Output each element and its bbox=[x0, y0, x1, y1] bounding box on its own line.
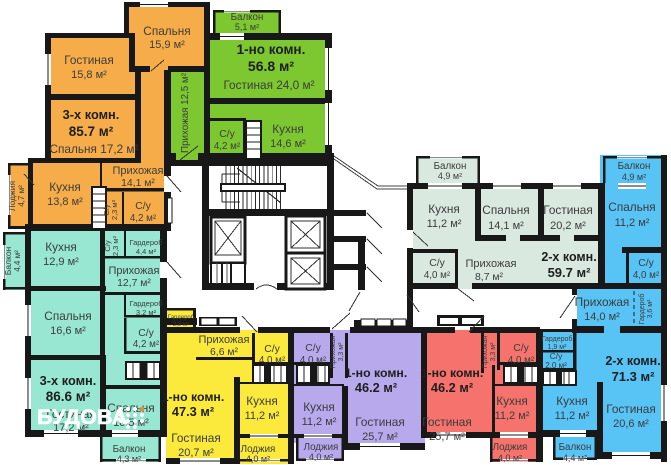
svg-text:2,0 м²: 2,0 м² bbox=[545, 361, 567, 370]
svg-text:С/у: С/у bbox=[638, 258, 654, 269]
svg-text:Спальня: Спальня bbox=[608, 200, 655, 214]
svg-text:С/у: С/у bbox=[135, 201, 151, 212]
svg-text:11,2 м²: 11,2 м² bbox=[302, 416, 337, 428]
svg-text:13,8 м²: 13,8 м² bbox=[47, 196, 83, 208]
svg-text:Прихожая: Прихожая bbox=[575, 295, 630, 309]
svg-text:4,2 м²: 4,2 м² bbox=[133, 339, 160, 350]
svg-text:Гардероб: Гардероб bbox=[130, 299, 163, 308]
svg-text:86.6 м²: 86.6 м² bbox=[46, 389, 91, 404]
svg-text:Гардероб: Гардероб bbox=[168, 315, 195, 321]
svg-text:С/у: С/у bbox=[219, 129, 235, 140]
svg-text:4,9 м²: 4,9 м² bbox=[622, 172, 646, 182]
svg-text:С/у: С/у bbox=[550, 351, 564, 361]
svg-text:Лоджия: Лоджия bbox=[493, 442, 528, 453]
svg-text:Балкон: Балкон bbox=[559, 442, 592, 453]
svg-text:20,2 м²: 20,2 м² bbox=[550, 220, 586, 232]
svg-text:Прихожая 12,5 м²: Прихожая 12,5 м² bbox=[180, 72, 191, 153]
svg-text:25,7 м²: 25,7 м² bbox=[362, 431, 398, 443]
svg-text:56.8 м²: 56.8 м² bbox=[248, 58, 294, 74]
svg-text:11,2 м²: 11,2 м² bbox=[245, 410, 280, 422]
svg-text:Кухня: Кухня bbox=[45, 240, 77, 254]
svg-text:1,9 м²: 1,9 м² bbox=[548, 344, 567, 351]
svg-text:Балкон: Балкон bbox=[3, 246, 13, 275]
svg-text:Прихожая: Прихожая bbox=[199, 334, 250, 346]
svg-text:Лоджия: Лоджия bbox=[7, 181, 17, 212]
svg-text:4,0 м²: 4,0 м² bbox=[246, 454, 270, 464]
svg-text:2,3 м²: 2,3 м² bbox=[111, 235, 120, 256]
svg-text:14,1 м²: 14,1 м² bbox=[121, 178, 155, 189]
svg-text:11,2 м²: 11,2 м² bbox=[555, 410, 590, 422]
svg-text:4,4 м²: 4,4 м² bbox=[13, 250, 22, 272]
svg-text:Гостиная: Гостиная bbox=[171, 431, 221, 445]
svg-text:16,6 м²: 16,6 м² bbox=[50, 325, 86, 337]
svg-text:11,2 м²: 11,2 м² bbox=[615, 217, 650, 229]
svg-text:Спальня: Спальня bbox=[143, 24, 190, 38]
svg-text:Гардероб: Гардероб bbox=[542, 335, 573, 343]
svg-text:14,6 м²: 14,6 м² bbox=[270, 138, 306, 150]
svg-text:20,7 м²: 20,7 м² bbox=[178, 447, 214, 459]
svg-text:Кухня: Кухня bbox=[428, 202, 460, 216]
svg-text:3,3 м²: 3,3 м² bbox=[338, 342, 345, 361]
svg-text:Балкон: Балкон bbox=[618, 161, 651, 172]
svg-text:Кухня: Кухня bbox=[556, 394, 588, 408]
svg-text:4,4 м²: 4,4 м² bbox=[136, 247, 157, 256]
svg-text:59.7 м²: 59.7 м² bbox=[548, 265, 592, 280]
svg-text:Гостиная: Гостиная bbox=[606, 402, 656, 416]
svg-text:С/у: С/у bbox=[138, 328, 154, 339]
svg-text:12,7 м²: 12,7 м² bbox=[117, 278, 151, 289]
svg-text:14,0 м²: 14,0 м² bbox=[584, 311, 620, 323]
svg-text:4,0 м²: 4,0 м² bbox=[309, 452, 333, 462]
svg-text:С/у: С/у bbox=[513, 343, 529, 354]
svg-text:Гардероб: Гардероб bbox=[638, 294, 646, 325]
svg-text:Прихожая: Прихожая bbox=[113, 165, 164, 177]
svg-text:20,6 м²: 20,6 м² bbox=[613, 418, 649, 430]
svg-text:Прихожая: Прихожая bbox=[466, 258, 517, 270]
svg-text:С/у: С/у bbox=[305, 343, 321, 354]
svg-text:Кухня: Кухня bbox=[272, 122, 304, 136]
svg-text:8,7 м²: 8,7 м² bbox=[475, 272, 503, 283]
svg-text:3,3 м²: 3,3 м² bbox=[490, 342, 497, 361]
svg-text:4,7 м²: 4,7 м² bbox=[17, 185, 26, 207]
svg-text:Кухня: Кухня bbox=[49, 180, 81, 194]
svg-text:4,0 м²: 4,0 м² bbox=[259, 355, 286, 366]
svg-text:11,2 м²: 11,2 м² bbox=[427, 218, 462, 230]
svg-text:2,8 м²: 2,8 м² bbox=[173, 322, 189, 328]
svg-text:Кухня: Кухня bbox=[496, 394, 528, 408]
svg-text:1-но комн.: 1-но комн. bbox=[421, 366, 484, 380]
svg-text:Гостиная: Гостиная bbox=[422, 415, 472, 429]
svg-text:2-х комн.: 2-х комн. bbox=[605, 354, 660, 368]
svg-text:С/у: С/у bbox=[264, 344, 280, 355]
svg-text:6,6 м²: 6,6 м² bbox=[210, 347, 238, 358]
svg-text:15,9 м²: 15,9 м² bbox=[149, 39, 185, 51]
svg-text:12,9 м²: 12,9 м² bbox=[43, 256, 79, 268]
svg-text:Прихожая: Прихожая bbox=[330, 336, 337, 369]
svg-text:Гостиная: Гостиная bbox=[355, 415, 405, 429]
svg-text:2-х комн.: 2-х комн. bbox=[541, 250, 596, 264]
svg-text:3-х комн.: 3-х комн. bbox=[40, 373, 97, 388]
svg-text:Спальня: Спальня bbox=[482, 203, 529, 217]
svg-text:4,0 м²: 4,0 м² bbox=[424, 270, 451, 281]
svg-text:Спальня: Спальня bbox=[44, 309, 91, 323]
svg-text:47.3 м²: 47.3 м² bbox=[172, 404, 214, 419]
svg-text:4,0 м²: 4,0 м² bbox=[300, 355, 327, 366]
svg-text:2,3 м²: 2,3 м² bbox=[110, 199, 119, 220]
svg-text:4,9 м²: 4,9 м² bbox=[438, 171, 462, 181]
svg-text:3,2 м²: 3,2 м² bbox=[136, 308, 157, 317]
svg-text:4,0 м²: 4,0 м² bbox=[498, 453, 522, 463]
svg-text:4,4 м²: 4,4 м² bbox=[563, 453, 587, 463]
svg-text:Прихожая: Прихожая bbox=[109, 265, 160, 277]
svg-text:11,2 м²: 11,2 м² bbox=[495, 410, 530, 422]
svg-text:4,0 м²: 4,0 м² bbox=[633, 270, 660, 281]
svg-text:25,7 м²: 25,7 м² bbox=[429, 431, 465, 443]
svg-text:3-х комн.: 3-х комн. bbox=[63, 107, 120, 122]
svg-text:Кухня: Кухня bbox=[246, 394, 278, 408]
svg-text:85.7 м²: 85.7 м² bbox=[69, 124, 114, 139]
svg-text:14,1 м²: 14,1 м² bbox=[488, 220, 524, 232]
svg-text:46.2 м²: 46.2 м² bbox=[431, 380, 473, 395]
svg-text:Спальня 17,2 м²: Спальня 17,2 м² bbox=[50, 142, 139, 156]
svg-text:С/у: С/у bbox=[429, 258, 445, 269]
svg-text:БУДОВА: БУДОВА bbox=[37, 405, 127, 429]
svg-text:71.3 м²: 71.3 м² bbox=[612, 369, 656, 384]
svg-text:Прихожая: Прихожая bbox=[482, 336, 489, 369]
svg-text:46.2 м²: 46.2 м² bbox=[355, 380, 397, 395]
svg-text:4,0 м²: 4,0 м² bbox=[508, 355, 535, 366]
svg-text:Гардероб: Гардероб bbox=[130, 238, 163, 247]
svg-text:1-но комн.: 1-но комн. bbox=[345, 366, 408, 380]
svg-text:Гостиная: Гостиная bbox=[543, 203, 593, 217]
svg-text:4,2 м²: 4,2 м² bbox=[214, 141, 241, 152]
svg-text:4,2 м²: 4,2 м² bbox=[130, 213, 157, 224]
svg-text:3,6 м²: 3,6 м² bbox=[647, 299, 654, 318]
svg-text:4,3 м²: 4,3 м² bbox=[117, 454, 141, 464]
svg-text:Кухня: Кухня bbox=[303, 400, 335, 414]
svg-text:1-но комн.: 1-но комн. bbox=[237, 42, 306, 57]
svg-text:Гостиная 24,0 м²: Гостиная 24,0 м² bbox=[223, 78, 314, 92]
svg-text:Гостиная: Гостиная bbox=[64, 53, 114, 67]
svg-text:5,1 м²: 5,1 м² bbox=[235, 22, 259, 32]
svg-text:1-но комн.: 1-но комн. bbox=[162, 390, 225, 404]
svg-text:15,8 м²: 15,8 м² bbox=[71, 69, 107, 81]
